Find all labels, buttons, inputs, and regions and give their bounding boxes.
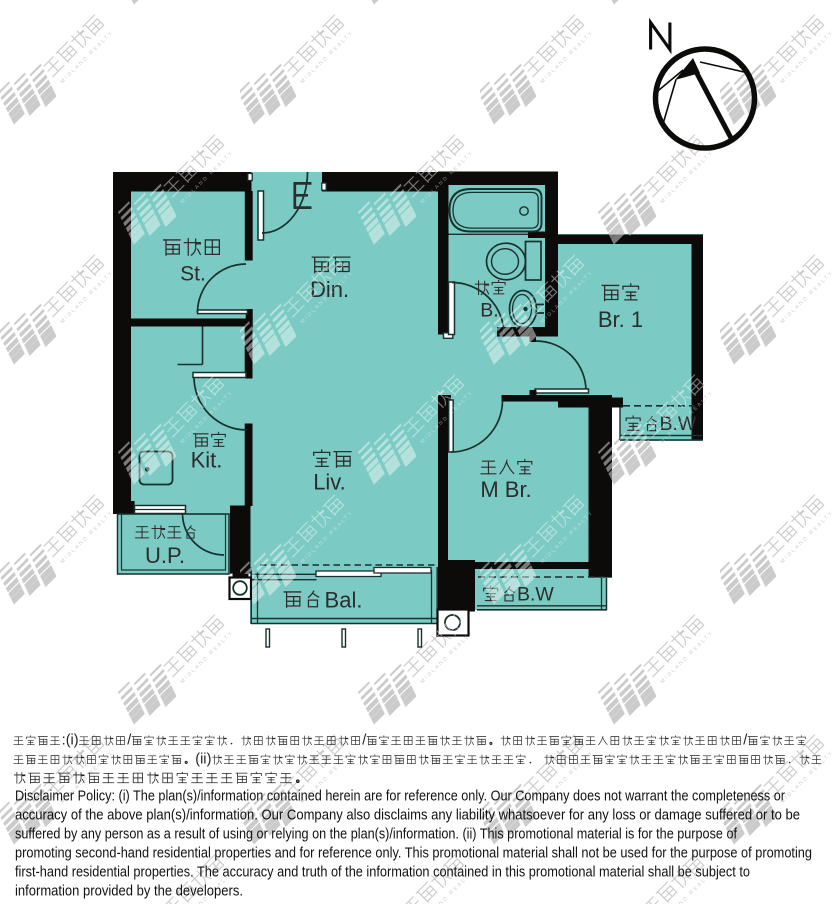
svg-text:suffered by any person as a re: suffered by any person as a result of us… [15, 827, 738, 843]
svg-text:information provided by the de: information provided by the developers. [15, 884, 243, 900]
svg-text:accuracy of the above plan(s)/: accuracy of the above plan(s)/informatio… [15, 808, 800, 824]
svg-text:): ) [207, 752, 212, 768]
svg-text:first-hand residential propert: first-hand residential properties. The a… [15, 865, 750, 881]
svg-text:Disclaimer Policy: (i) The pla: Disclaimer Policy: (i) The plan(s)/infor… [15, 789, 785, 805]
svg-text:promoting second-hand resident: promoting second-hand residential proper… [15, 846, 812, 862]
svg-text:): ) [74, 733, 79, 749]
